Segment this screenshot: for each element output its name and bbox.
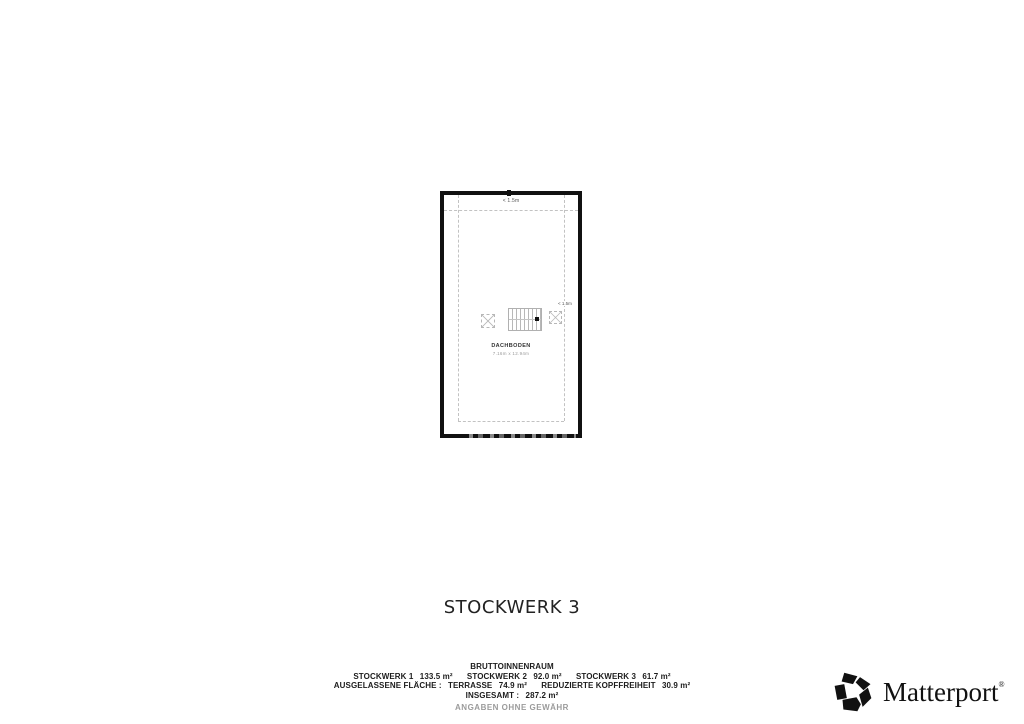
floor-2-area: 92.0 m² — [533, 672, 561, 681]
skylight-symbol-left — [481, 314, 495, 328]
brand-text: Matterport — [883, 677, 998, 707]
wall-marker-tick — [507, 190, 511, 196]
excluded-item-2-area: 30.9 m² — [662, 681, 690, 690]
matterport-logo: Matterport® — [832, 671, 1005, 713]
clearance-label-right: < 1.5m — [557, 301, 573, 306]
staircase-direction-marker — [535, 317, 539, 321]
floor-1-area: 133.5 m² — [420, 672, 453, 681]
crossed-box-icon — [550, 312, 561, 323]
room-dimensions-label: 7.16m x 12.94m — [444, 351, 578, 356]
reduced-headroom-boundary-top — [444, 210, 578, 211]
reduced-headroom-boundary-bottom — [458, 421, 564, 422]
matterport-pinwheel-icon — [832, 671, 874, 713]
floor-3-area: 61.7 m² — [642, 672, 670, 681]
reduced-headroom-boundary-right — [564, 195, 565, 421]
total-label: INSGESAMT : — [466, 691, 520, 700]
floor-1-label: STOCKWERK 1 — [353, 672, 413, 681]
staircase-symbol — [508, 308, 542, 331]
room-name-label: DACHBODEN — [444, 343, 578, 349]
registered-trademark-symbol: ® — [998, 680, 1004, 689]
floor-3-label: STOCKWERK 3 — [576, 672, 636, 681]
watermark-artifact — [462, 433, 576, 440]
reduced-headroom-boundary-left — [458, 195, 459, 421]
excluded-item-2-label: REDUZIERTE KOPFFREIHEIT — [541, 681, 655, 690]
clearance-label-top: < 1.5m — [444, 198, 578, 204]
floorplan-page: { "floorplan": { "title": "STOCKWERK 3",… — [0, 0, 1024, 724]
excluded-label: AUSGELASSENE FLÄCHE : — [334, 681, 442, 690]
total-area: 287.2 m² — [526, 691, 559, 700]
matterport-wordmark: Matterport® — [883, 677, 1005, 708]
floorplan-outline: < 1.5m < 1.5m DACHBODEN 7.16m x 12.94m — [440, 191, 582, 438]
page-title: STOCKWERK 3 — [0, 597, 1024, 618]
skylight-symbol-right — [549, 311, 562, 324]
crossed-box-icon — [482, 315, 494, 327]
excluded-item-1-label: TERRASSE — [448, 681, 492, 690]
excluded-item-1-area: 74.9 m² — [499, 681, 527, 690]
floor-2-label: STOCKWERK 2 — [467, 672, 527, 681]
